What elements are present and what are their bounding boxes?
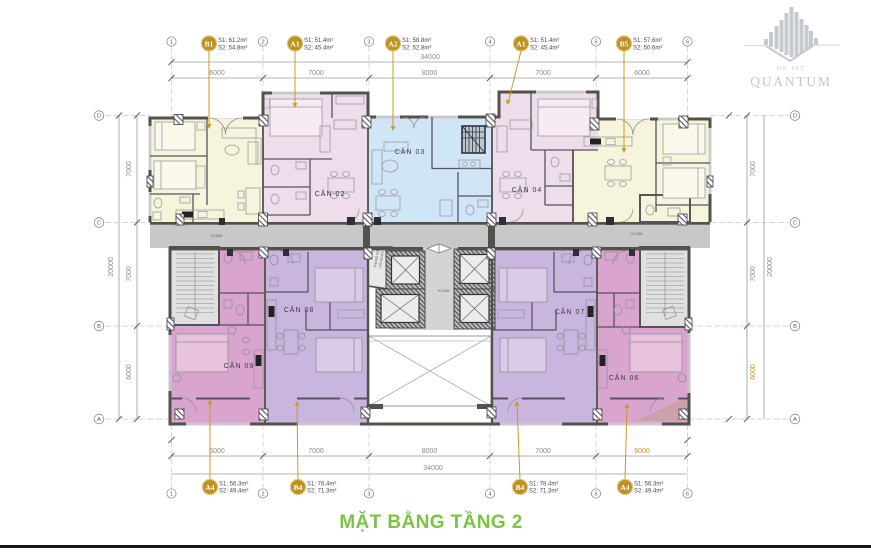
svg-text:7000: 7000 [750,266,757,282]
svg-text:S1: 78.4m²: S1: 78.4m² [307,482,336,488]
svg-text:A1: A1 [290,39,299,48]
svg-text:CĂN 03: CĂN 03 [395,147,426,156]
svg-text:S2: 49.4m²: S2: 49.4m² [634,489,663,495]
svg-text:+0.200: +0.200 [437,288,450,293]
svg-text:QUANTUM: QUANTUM [750,74,832,89]
svg-text:5: 5 [594,492,597,498]
svg-text:6: 6 [686,492,689,498]
svg-text:D: D [793,114,797,120]
svg-text:6000: 6000 [634,70,650,77]
svg-text:6000: 6000 [209,448,225,455]
svg-text:4: 4 [488,492,491,498]
svg-text:6: 6 [686,40,689,46]
svg-text:1: 1 [170,492,173,498]
svg-text:B1: B1 [205,39,214,48]
svg-text:7000: 7000 [750,161,757,177]
svg-text:34000: 34000 [423,465,443,472]
svg-text:CĂN 09: CĂN 09 [224,361,255,370]
svg-text:C: C [793,221,797,227]
svg-text:A4: A4 [620,483,629,492]
svg-text:2: 2 [261,492,264,498]
svg-text:6000: 6000 [750,364,757,380]
svg-text:6000: 6000 [209,70,225,77]
svg-text:B: B [97,324,101,330]
svg-text:S2: 71.3m²: S2: 71.3m² [307,489,336,495]
svg-text:D: D [97,114,101,120]
svg-text:B4: B4 [294,483,303,492]
svg-text:S1: 51.4m²: S1: 51.4m² [304,38,333,44]
svg-text:8000: 8000 [422,70,438,77]
svg-text:B4: B4 [516,483,525,492]
svg-text:A2: A2 [388,39,397,48]
svg-text:1: 1 [170,40,173,46]
svg-text:5: 5 [594,40,597,46]
svg-text:7000: 7000 [535,70,551,77]
svg-text:DE 1ST: DE 1ST [777,65,805,72]
svg-text:CĂN 08: CĂN 08 [284,305,315,314]
svg-text:7000: 7000 [308,70,324,77]
svg-text:S2: 49.4m²: S2: 49.4m² [219,489,248,495]
svg-text:CĂN 07: CĂN 07 [555,307,586,316]
svg-text:7000: 7000 [126,161,133,177]
svg-text:S1: 56.3m²: S1: 56.3m² [219,482,248,488]
svg-text:S2: 54.8m²: S2: 54.8m² [218,46,247,52]
svg-text:S2: 50.6m²: S2: 50.6m² [633,46,662,52]
svg-text:S1: 78.4m²: S1: 78.4m² [529,482,558,488]
svg-text:2: 2 [261,40,264,46]
svg-text:CĂN 04: CĂN 04 [512,185,543,194]
svg-text:20000: 20000 [108,257,115,277]
svg-text:S2: 45.4m²: S2: 45.4m² [530,46,559,52]
svg-text:MẶT BẰNG TẦNG 2: MẶT BẰNG TẦNG 2 [339,511,522,533]
svg-text:6000: 6000 [126,364,133,380]
svg-text:3: 3 [367,40,370,46]
svg-text:S1: 57.6m²: S1: 57.6m² [633,38,662,44]
svg-text:7000: 7000 [126,266,133,282]
svg-text:S1: 61.2m²: S1: 61.2m² [218,38,247,44]
svg-text:S1: 51.4m²: S1: 51.4m² [530,38,559,44]
svg-text:S2: 45.4m²: S2: 45.4m² [304,46,333,52]
svg-text:6000: 6000 [634,448,650,455]
svg-text:B5: B5 [620,39,629,48]
svg-text:+0.200: +0.200 [210,233,223,238]
svg-text:+0.200: +0.200 [630,231,643,236]
svg-text:34000: 34000 [420,54,440,61]
svg-text:7000: 7000 [535,448,551,455]
svg-text:C: C [97,221,101,227]
svg-text:S1: 56.3m²: S1: 56.3m² [634,482,663,488]
svg-text:S1: 58.8m²: S1: 58.8m² [402,38,431,44]
svg-text:S2: 52.8m²: S2: 52.8m² [402,46,431,52]
svg-text:S2: 71.3m²: S2: 71.3m² [529,489,558,495]
svg-text:20000: 20000 [767,257,774,277]
svg-text:A4: A4 [205,483,214,492]
svg-text:3: 3 [367,492,370,498]
svg-text:8000: 8000 [422,448,438,455]
svg-text:CĂN 02: CĂN 02 [315,189,346,198]
svg-text:A: A [793,417,797,423]
svg-text:4: 4 [488,40,491,46]
svg-text:7000: 7000 [308,448,324,455]
svg-text:A1: A1 [516,39,525,48]
svg-text:B: B [793,324,797,330]
svg-text:CĂN 06: CĂN 06 [609,373,640,382]
svg-text:A: A [97,417,101,423]
